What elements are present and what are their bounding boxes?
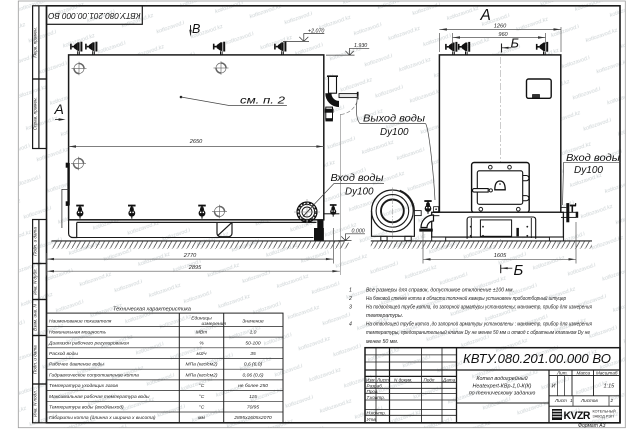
svg-text:Лист: Лист <box>376 377 389 382</box>
svg-text:Расход воды: Расход воды <box>49 351 78 357</box>
svg-text:Справ. примен.: Справ. примен. <box>32 97 37 130</box>
svg-text:На боковой стенке котла в обла: На боковой стенке котла в области топочн… <box>366 295 566 302</box>
svg-text:Диапазон рабочего регулировани: Диапазон рабочего регулирования <box>48 340 129 346</box>
svg-text:1:15: 1:15 <box>604 384 616 390</box>
svg-text:Выход воды: Выход воды <box>363 113 425 125</box>
svg-text:измерения: измерения <box>202 322 227 327</box>
svg-text:м3/ч: м3/ч <box>197 351 207 357</box>
svg-text:Изм: Изм <box>366 377 375 382</box>
svg-text:Техническая характеристика: Техническая характеристика <box>113 307 191 313</box>
svg-text:Утв.: Утв. <box>367 417 377 422</box>
svg-text:N докум.: N докум. <box>394 377 413 382</box>
svg-text:Подп. и дата: Подп. и дата <box>32 345 37 374</box>
svg-text:Пров.: Пров. <box>367 389 379 394</box>
svg-text:Котел водогрейный: Котел водогрейный <box>476 375 527 382</box>
svg-text:Н.контр.: Н.контр. <box>367 410 386 415</box>
svg-text:ЗАВОД РЭП: ЗАВОД РЭП <box>593 414 614 418</box>
svg-text:Температура уходящих газов: Температура уходящих газов <box>49 383 118 389</box>
svg-text:1260: 1260 <box>494 23 507 29</box>
svg-text:0,06 (0,6): 0,06 (0,6) <box>243 372 264 378</box>
svg-text:960: 960 <box>498 32 508 38</box>
svg-text:Инв. N подл.: Инв. N подл. <box>32 390 37 417</box>
svg-text:Разраб.: Разраб. <box>367 383 384 388</box>
svg-text:Единицы: Единицы <box>191 315 212 321</box>
svg-text:°С: °С <box>199 383 205 389</box>
svg-text:1: 1 <box>570 398 573 403</box>
svg-text:В: В <box>192 22 200 36</box>
svg-text:температуры.: температуры. <box>366 313 403 319</box>
svg-text:см. п. 2: см. п. 2 <box>240 96 286 107</box>
svg-text:1605: 1605 <box>494 253 507 259</box>
svg-text:А: А <box>480 7 491 24</box>
svg-text:На подводящей трубе котла, до: На подводящей трубе котла, до запорной а… <box>366 304 592 311</box>
svg-text:2770: 2770 <box>183 253 197 259</box>
svg-text:Масса: Масса <box>577 371 591 376</box>
svg-text:менее 50 мм.: менее 50 мм. <box>366 339 398 345</box>
svg-text:КВТУ.080.201.00.000 ВО: КВТУ.080.201.00.000 ВО <box>463 352 611 366</box>
svg-text:Масштаб: Масштаб <box>596 371 618 376</box>
svg-text:2895х1605х2070: 2895х1605х2070 <box>233 415 272 421</box>
svg-text:2650: 2650 <box>189 139 203 145</box>
svg-text:0.000: 0.000 <box>352 228 365 234</box>
svg-text:2: 2 <box>348 296 352 302</box>
svg-text:Подп. и дата: Подп. и дата <box>32 227 37 256</box>
svg-text:3: 3 <box>349 305 352 311</box>
svg-text:Heatexpert-КВр-1,0-К(К): Heatexpert-КВр-1,0-К(К) <box>473 384 532 390</box>
svg-text:2895: 2895 <box>188 265 202 271</box>
svg-text:Гидравлическое сопротивление к: Гидравлическое сопротивление котла <box>49 372 139 378</box>
svg-text:KVZR: KVZR <box>564 410 591 422</box>
svg-text:Рабочее давление воды: Рабочее давление воды <box>49 362 104 368</box>
svg-text:Наименование показателя: Наименование показателя <box>49 319 112 325</box>
svg-text:Дата: Дата <box>442 377 456 382</box>
svg-text:Температура воды (вход/выход): Температура воды (вход/выход) <box>49 405 124 411</box>
svg-text:Подп: Подп <box>424 377 435 382</box>
svg-text:1: 1 <box>349 288 352 294</box>
svg-text:Вход воды: Вход воды <box>331 172 384 184</box>
svg-text:Перв. примен.: Перв. примен. <box>32 27 37 58</box>
svg-text:И: И <box>552 384 556 390</box>
svg-text:не более 250: не более 250 <box>238 383 268 389</box>
svg-text:по техническому заданию: по техническому заданию <box>469 391 536 397</box>
svg-text:А: А <box>54 101 64 117</box>
svg-text:°С: °С <box>199 405 205 411</box>
svg-text:Формат А3: Формат А3 <box>578 423 606 429</box>
svg-text:Dy100: Dy100 <box>574 164 603 176</box>
svg-text:Номинальная мощность: Номинальная мощность <box>49 330 107 336</box>
svg-text:Лит.: Лит. <box>556 371 568 376</box>
svg-text:Максимальная рабочая температу: Максимальная рабочая температура воды <box>49 394 150 400</box>
svg-text:Листов: Листов <box>580 398 598 403</box>
svg-text:2: 2 <box>610 398 614 403</box>
svg-text:Инв. N дубл.: Инв. N дубл. <box>32 268 37 295</box>
svg-text:На отводящей трубе котла ,до з: На отводящей трубе котла ,до запорной ар… <box>366 321 592 328</box>
svg-text:КОТЕЛЬНЫЙ: КОТЕЛЬНЫЙ <box>593 409 616 413</box>
svg-text:%: % <box>199 340 204 346</box>
svg-text:50-100: 50-100 <box>245 340 261 346</box>
svg-text:температуры, предохранительный: температуры, предохранительный клапан Dу… <box>366 329 590 336</box>
svg-text:МПа (кгс/см2): МПа (кгс/см2) <box>186 372 218 378</box>
svg-text:Dy100: Dy100 <box>345 185 374 197</box>
svg-text:1,0: 1,0 <box>250 330 257 336</box>
svg-text:Лист: Лист <box>554 398 567 403</box>
svg-text:Все размеры для справок, допус: Все размеры для справок, допустимое откл… <box>366 288 514 294</box>
svg-text:МВт: МВт <box>196 330 207 336</box>
svg-text:4: 4 <box>349 322 352 328</box>
svg-text:Значение: Значение <box>242 319 264 325</box>
svg-text:Б: Б <box>514 262 524 279</box>
svg-text:МПа (кгс/см2): МПа (кгс/см2) <box>186 362 218 368</box>
svg-text:Габариты котла (длинна х ширин: Габариты котла (длинна х ширина х высота… <box>49 415 156 421</box>
svg-text:°С: °С <box>199 394 205 400</box>
svg-text:1.930: 1.930 <box>354 43 367 49</box>
svg-text:Dy100: Dy100 <box>380 126 409 138</box>
svg-text:Т.контр.: Т.контр. <box>367 395 386 400</box>
svg-text:Б: Б <box>511 35 520 50</box>
svg-text:мм: мм <box>198 416 205 421</box>
svg-text:35: 35 <box>250 351 256 357</box>
svg-text:Взам. инв. N: Взам. инв. N <box>32 303 37 330</box>
svg-text:115: 115 <box>249 394 257 400</box>
svg-text:70/95: 70/95 <box>247 405 260 411</box>
svg-text:КВТУ.080.201.00.000 ВО: КВТУ.080.201.00.000 ВО <box>48 11 141 20</box>
svg-text:0,6 (6,0): 0,6 (6,0) <box>244 362 263 368</box>
